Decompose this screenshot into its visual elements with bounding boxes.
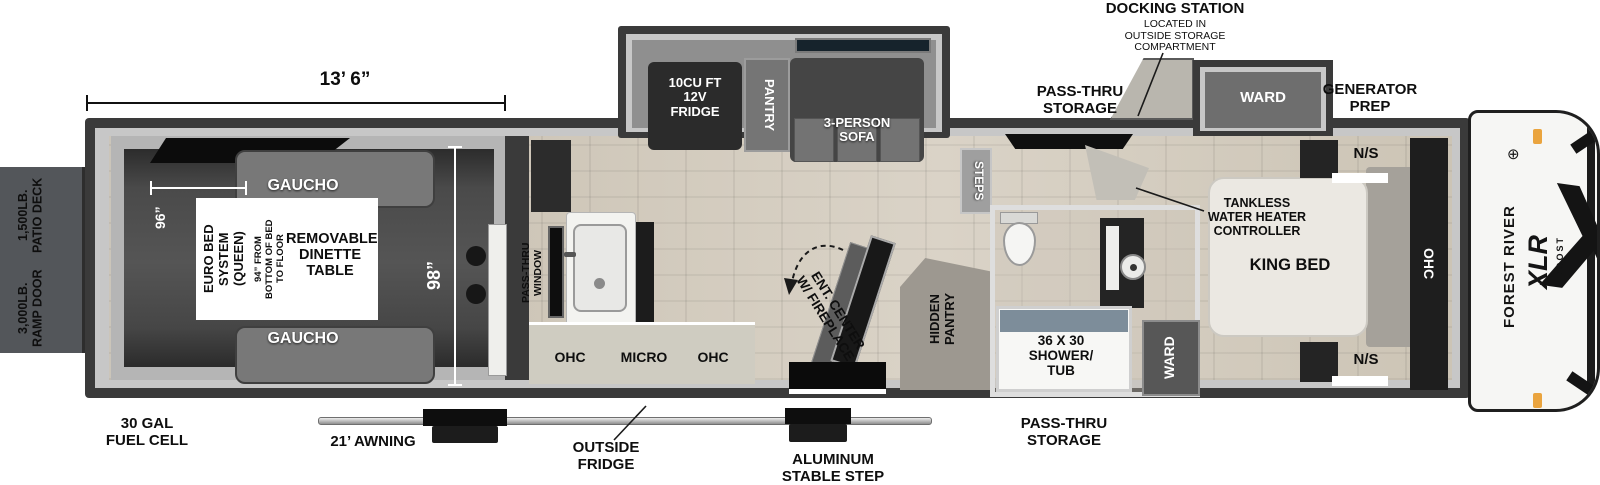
nightstand-top-shelf [1332, 173, 1388, 183]
bed-headboard [1366, 167, 1414, 347]
tankless-label: TANKLESS WATER HEATER CONTROLLER [1196, 197, 1318, 238]
floorplan-scene: 1,500LB. PATIO DECK 3,000LB. RAMP DOOR 1… [0, 0, 1600, 485]
front-cap: X ⊕ FOREST RIVER XLR BOOST [1468, 110, 1600, 412]
bedroom-ohc-label: OHC [1421, 238, 1437, 290]
ward-slide-label: WARD [1205, 90, 1321, 107]
stable-step-label: ALUMINUM STABLE STEP [768, 452, 898, 485]
nightstand-top-label: N/S [1340, 146, 1392, 163]
dim-98-tick-top [448, 146, 462, 148]
dim-tick-right [504, 95, 506, 111]
brand-maker: FOREST RIVER [1501, 167, 1523, 367]
king-bed-label: KING BED [1238, 256, 1342, 274]
dinette-label: REMOVABLE DINETTE TABLE [286, 232, 374, 280]
bath-ward-label: WARD [1161, 330, 1181, 386]
sink-drain [594, 278, 605, 289]
awning-label: 21’ AWNING [322, 434, 424, 451]
micro-label: MICRO [608, 350, 680, 365]
brand-model: XLR [1523, 197, 1553, 327]
entry-door-mat [789, 362, 886, 389]
garage-entry-step-upper [423, 409, 507, 426]
pantry-label: PANTRY [758, 66, 776, 144]
gaucho-bottom-label: GAUCHO [233, 330, 373, 348]
cap-stripe-top [1570, 110, 1600, 154]
stable-step-upper [785, 408, 851, 424]
gaucho-top-label: GAUCHO [233, 177, 373, 195]
sink-faucet [564, 252, 576, 257]
euro-bed-note: 94” FROM BOTTOM OF BED TO FLOOR [254, 205, 288, 313]
fridge-label: 10CU FT 12V FRIDGE [652, 76, 738, 119]
dim-98-line [454, 146, 456, 386]
dim-96-label: 96” [152, 196, 174, 240]
clearance-light-top [1533, 129, 1542, 144]
fuel-cell-label: 30 GAL FUEL CELL [88, 416, 206, 449]
table-pedestal-1 [466, 246, 486, 266]
vanity-sink-drain [1130, 264, 1137, 271]
hall-window [1005, 134, 1133, 149]
clearance-light-bottom [1533, 393, 1542, 408]
dim-98-label: 98” [424, 246, 452, 304]
garage-length-dim-label: 13’ 6” [285, 70, 405, 91]
pass-thru-window [548, 226, 564, 318]
kitchen-sink [573, 224, 627, 312]
ohc-left-label: OHC [545, 350, 595, 365]
table-pedestal-2 [466, 284, 486, 304]
range-hood [531, 140, 571, 212]
forest-river-logo-icon: ⊕ [1507, 145, 1520, 163]
euro-bed-label: EURO BED SYSTEM (QUEEN) [202, 203, 254, 315]
garage-length-dim-line [86, 102, 506, 104]
ohc-right-label: OHC [688, 350, 738, 365]
nightstand-bottom-label: N/S [1340, 352, 1392, 369]
patio-deck-label: 1,500LB. PATIO DECK [16, 171, 64, 259]
pass-thru-storage-top-label: PASS-THRU STORAGE [1024, 84, 1136, 117]
dim-98-tick-bottom [448, 384, 462, 386]
stable-step-lower [789, 424, 847, 442]
brand-sub: BOOST [1555, 217, 1569, 297]
ramp-door-label: 3,000LB. RAMP DOOR [16, 264, 64, 352]
generator-prep-label: GENERATOR PREP [1316, 82, 1424, 115]
dim-96-tick-right [245, 181, 247, 195]
pass-thru-storage-bottom-label: PASS-THRU STORAGE [1008, 416, 1120, 449]
kitchen-tall-cabinet [636, 222, 654, 322]
garage-door-opening [488, 224, 507, 376]
nightstand-bottom-shelf [1332, 376, 1388, 386]
hidden-pantry-label: HIDDEN PANTRY [928, 282, 962, 356]
steps-label: STEPS [967, 152, 985, 210]
pass-thru-window-label: PASS-THRU WINDOW [520, 237, 548, 309]
docking-station-title: DOCKING STATION [1100, 1, 1250, 18]
sofa-label: 3-PERSON SOFA [800, 116, 914, 145]
garage-entry-step-lower [432, 426, 498, 443]
slide-window [795, 38, 931, 53]
entry-door-sill [789, 389, 886, 394]
vanity-mirror [1106, 226, 1119, 290]
outside-fridge-label: OUTSIDE FRIDGE [558, 440, 654, 473]
shower-water [1000, 310, 1128, 332]
shower-label: 36 X 30 SHOWER/ TUB [1000, 334, 1122, 379]
docking-station-note: LOCATED IN OUTSIDE STORAGE COMPARTMENT [1112, 19, 1238, 54]
dim-tick-left [86, 95, 88, 111]
dim-96-line [150, 187, 247, 189]
dim-96-tick-left [150, 181, 152, 195]
